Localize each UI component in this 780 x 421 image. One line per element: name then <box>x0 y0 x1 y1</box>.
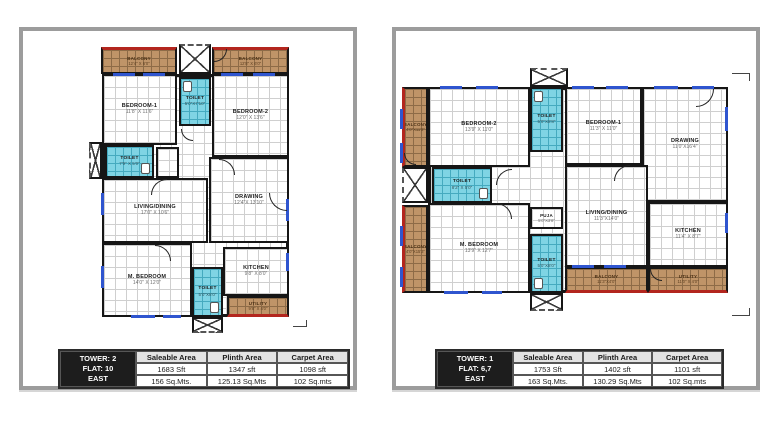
window-marker <box>725 213 728 233</box>
window-marker <box>440 86 462 89</box>
area-table-tower-1: TOWER: 1 FLAT: 6,7 EAST Saleable Area Pl… <box>435 349 724 389</box>
toilet-fixture <box>534 278 543 289</box>
staircase-bottom <box>530 293 563 311</box>
dimension-tick <box>732 315 750 316</box>
staircase-left <box>89 142 102 179</box>
dimension-tick <box>749 308 750 316</box>
flat-label: FLAT: 6,7 <box>459 364 492 374</box>
room-dims: 11'3" X 11'0" <box>590 127 618 133</box>
room-drawing: DRAWING 11'0"X16'4" <box>642 87 728 202</box>
room-dims: 11'0"X16'4" <box>672 145 697 151</box>
window-marker <box>101 193 104 215</box>
room-dims: 13'9" X 12'7" <box>465 249 493 255</box>
room-label: BALCONY <box>127 56 151 61</box>
room-toilet-mid: TOILET 8'2" X 5'0" <box>432 167 492 203</box>
room-dims: 4'0"X11'8" <box>406 128 425 133</box>
window-marker <box>400 267 403 287</box>
room-dims: 7'9" X 5'0" <box>119 162 139 167</box>
room-dims: 8'2" X 5'0" <box>452 186 472 191</box>
room-toilet-mid: TOILET 7'9" X 5'0" <box>105 145 154 178</box>
room-dims: 13'9" X 11'0" <box>465 128 493 134</box>
window-marker <box>572 86 594 89</box>
room-label: BEDROOM-2 <box>461 121 496 127</box>
toilet-fixture <box>141 163 150 174</box>
room-dims: 5'0"X8'0" <box>199 293 217 298</box>
col-header: Carpet Area <box>652 351 722 363</box>
area-value: 1683 Sft <box>136 363 207 375</box>
lobby <box>156 147 179 178</box>
window-marker <box>725 107 728 131</box>
window-marker <box>654 86 678 89</box>
area-value: 102 Sq.mts <box>652 375 722 387</box>
room-dims: 5'0"X7'10" <box>185 102 205 107</box>
room-toilet-top: TOILET 5'0"X8'8" <box>530 87 563 152</box>
room-utility: UTILITY 9'8" X 4'0" <box>227 296 289 317</box>
room-dims: 5'0"X8'0" <box>538 264 556 269</box>
room-master-bedroom: M. BEDROOM 14'0" X 12'0" <box>102 243 192 317</box>
room-label: M. BEDROOM <box>128 274 166 280</box>
tower-cell: TOWER: 1 FLAT: 6,7 EAST <box>437 351 513 387</box>
area-value: 156 Sq.Mts. <box>136 375 207 387</box>
window-marker <box>400 226 403 246</box>
window-marker <box>604 265 626 268</box>
room-label: LIVING/DINING <box>586 210 628 216</box>
room-dims: 17'0" X 10'6" <box>141 211 169 217</box>
dimension-tick <box>732 73 750 74</box>
floor-plan-panel-tower-2: BALCONY 12'4" X 6'0" BALCONY 12'8" X 6'0… <box>19 27 357 390</box>
room-dims: 11'3"X14'0" <box>594 217 619 223</box>
facing-label: EAST <box>88 374 108 384</box>
window-marker <box>163 315 181 318</box>
tower-cell: TOWER: 2 FLAT: 10 EAST <box>60 351 136 387</box>
room-dims: 12'4"X 13'10" <box>234 201 264 207</box>
room-master-bedroom: M. BEDROOM 13'9" X 12'7" <box>428 203 530 293</box>
window-marker <box>482 291 502 294</box>
room-balcony-bottom-left: BALCONY 4'0"X15'3" <box>402 205 428 293</box>
toilet-fixture <box>183 81 192 92</box>
room-toilet-bottom: TOILET 5'0"X8'0" <box>192 267 223 317</box>
room-label: TOILET <box>453 179 471 185</box>
window-marker <box>606 86 628 89</box>
room-dims: 11'8" X 11'6" <box>126 110 154 116</box>
room-dims: 5'0"X8'8" <box>538 120 556 125</box>
staircase-bottom <box>192 317 223 333</box>
tower-label: TOWER: 2 <box>80 354 117 364</box>
room-label: PUJA <box>540 213 553 218</box>
room-bedroom-2: BEDROOM-2 13'9" X 11'0" <box>428 87 530 167</box>
room-dims: 12'0" X 13'6" <box>236 116 264 122</box>
window-marker <box>476 86 498 89</box>
room-balcony-bottom: BALCONY 11'3"X4'0" <box>565 267 648 293</box>
room-label: TOILET <box>198 286 216 292</box>
room-kitchen: KITCHEN 11'4" X 8'7" <box>648 202 728 267</box>
room-bedroom-1: BEDROOM-1 11'3" X 11'0" <box>565 87 642 165</box>
tower-label: TOWER: 1 <box>457 354 494 364</box>
toilet-fixture <box>534 91 543 102</box>
col-header: Plinth Area <box>583 351 653 363</box>
room-dims: 14'0" X 12'0" <box>133 281 161 287</box>
room-dims: 5'0"X3'8" <box>538 219 555 224</box>
facing-label: EAST <box>465 374 485 384</box>
window-marker <box>444 291 468 294</box>
window-marker <box>221 73 243 76</box>
toilet-fixture <box>479 188 488 199</box>
area-value: 1098 sft <box>277 363 348 375</box>
area-value: 130.29 Sq.Mts <box>583 375 653 387</box>
room-balcony-left: BALCONY 12'4" X 6'0" <box>101 47 177 74</box>
room-living-dining: LIVING/DINING 11'3"X14'0" <box>565 165 648 267</box>
room-toilet-top: TOILET 5'0"X7'10" <box>179 77 211 126</box>
room-label: DRAWING <box>235 194 263 200</box>
room-dims: 11'0" X 4'0" <box>677 280 698 285</box>
area-value: 1402 sft <box>583 363 653 375</box>
staircase-top <box>530 68 568 87</box>
room-dims: 9'8" X 4'0" <box>248 307 267 312</box>
window-marker <box>131 315 155 318</box>
area-value: 102 Sq.mts <box>277 375 348 387</box>
window-marker <box>101 266 104 288</box>
dimension-tick <box>293 326 307 327</box>
area-value: 1101 sft <box>652 363 722 375</box>
flat-label: FLAT: 10 <box>83 364 114 374</box>
window-marker <box>400 109 403 129</box>
window-marker <box>143 73 165 76</box>
window-marker <box>400 143 403 163</box>
room-label: BALCONY <box>239 56 263 61</box>
area-value: 1753 Sft <box>513 363 583 375</box>
room-dims: 4'0"X15'3" <box>406 250 425 255</box>
room-dims: 11'4" X 8'7" <box>675 235 700 241</box>
area-table-tower-2: TOWER: 2 FLAT: 10 EAST Saleable Area Pli… <box>58 349 350 389</box>
room-bedroom-1: BEDROOM-1 11'8" X 11'6" <box>102 74 177 145</box>
window-marker <box>572 265 594 268</box>
staircase-top <box>179 44 211 74</box>
room-label: M. BEDROOM <box>460 242 498 248</box>
staircase-left <box>402 167 428 203</box>
room-dims: 12'8" X 6'0" <box>240 62 261 67</box>
col-header: Plinth Area <box>207 351 278 363</box>
col-header: Saleable Area <box>136 351 207 363</box>
area-value: 1347 sft <box>207 363 278 375</box>
col-header: Saleable Area <box>513 351 583 363</box>
room-bedroom-2: BEDROOM-2 12'0" X 13'6" <box>212 74 289 157</box>
area-value: 163 Sq.Mts. <box>513 375 583 387</box>
dimension-tick <box>749 73 750 81</box>
window-marker <box>286 253 289 271</box>
room-kitchen: KITCHEN 9'8" X 8'0" <box>223 247 289 296</box>
window-marker <box>113 73 135 76</box>
room-toilet-bottom: TOILET 5'0"X8'0" <box>530 234 563 293</box>
room-puja: PUJA 5'0"X3'8" <box>530 207 563 229</box>
area-value: 125.13 Sq.Mts <box>207 375 278 387</box>
room-label: BALCONY <box>404 122 428 127</box>
floor-plan-panel-tower-1: BALCONY 4'0"X11'8" BEDROOM-2 13'9" X 11'… <box>392 27 760 390</box>
room-dims: 12'4" X 6'0" <box>128 62 149 67</box>
room-dims: 11'3"X4'0" <box>597 280 616 285</box>
room-label: BALCONY <box>404 244 428 249</box>
room-label: UTILITY <box>249 301 267 306</box>
window-marker <box>253 73 275 76</box>
toilet-fixture <box>210 302 219 313</box>
room-dims: 9'8" X 8'0" <box>245 272 268 278</box>
dimension-tick <box>306 320 307 327</box>
col-header: Carpet Area <box>277 351 348 363</box>
room-label: BEDROOM-1 <box>586 120 621 126</box>
